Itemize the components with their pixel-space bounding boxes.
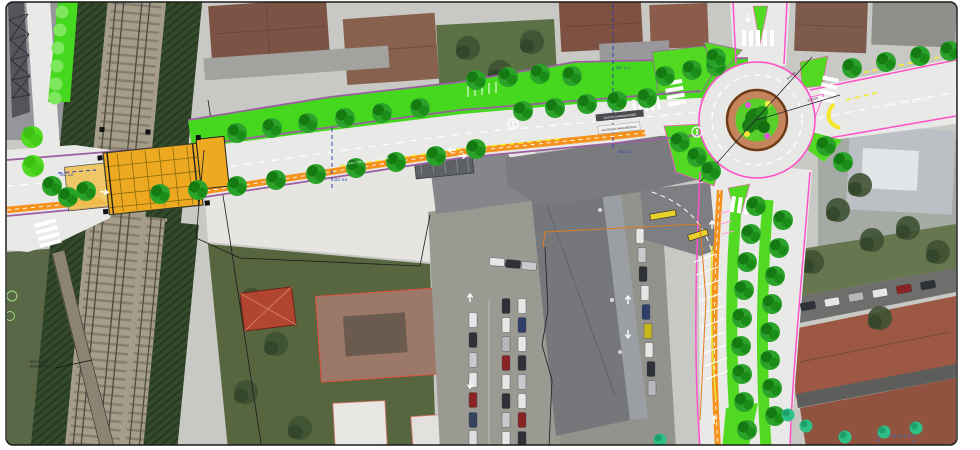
garden-building (316, 288, 442, 382)
box-note-line1: BOX IN C.A. (30, 360, 48, 364)
section-label-1: SEZ. A-A (60, 173, 74, 177)
section-label-2: SEZ. B-B (334, 178, 347, 182)
red-roof-shed (240, 287, 296, 331)
site-plan-page: R 12.50 R 20.00 BOX IN C.A. ESISTENTE SE… (0, 0, 980, 450)
box-note-line2: ESISTENTE (30, 365, 48, 369)
section-label-3: SEZ. C-C (616, 66, 630, 70)
site-plan-map: R 12.50 R 20.00 BOX IN C.A. ESISTENTE SE… (0, 0, 980, 450)
section-label-4: SEZ. D-D (618, 150, 632, 154)
